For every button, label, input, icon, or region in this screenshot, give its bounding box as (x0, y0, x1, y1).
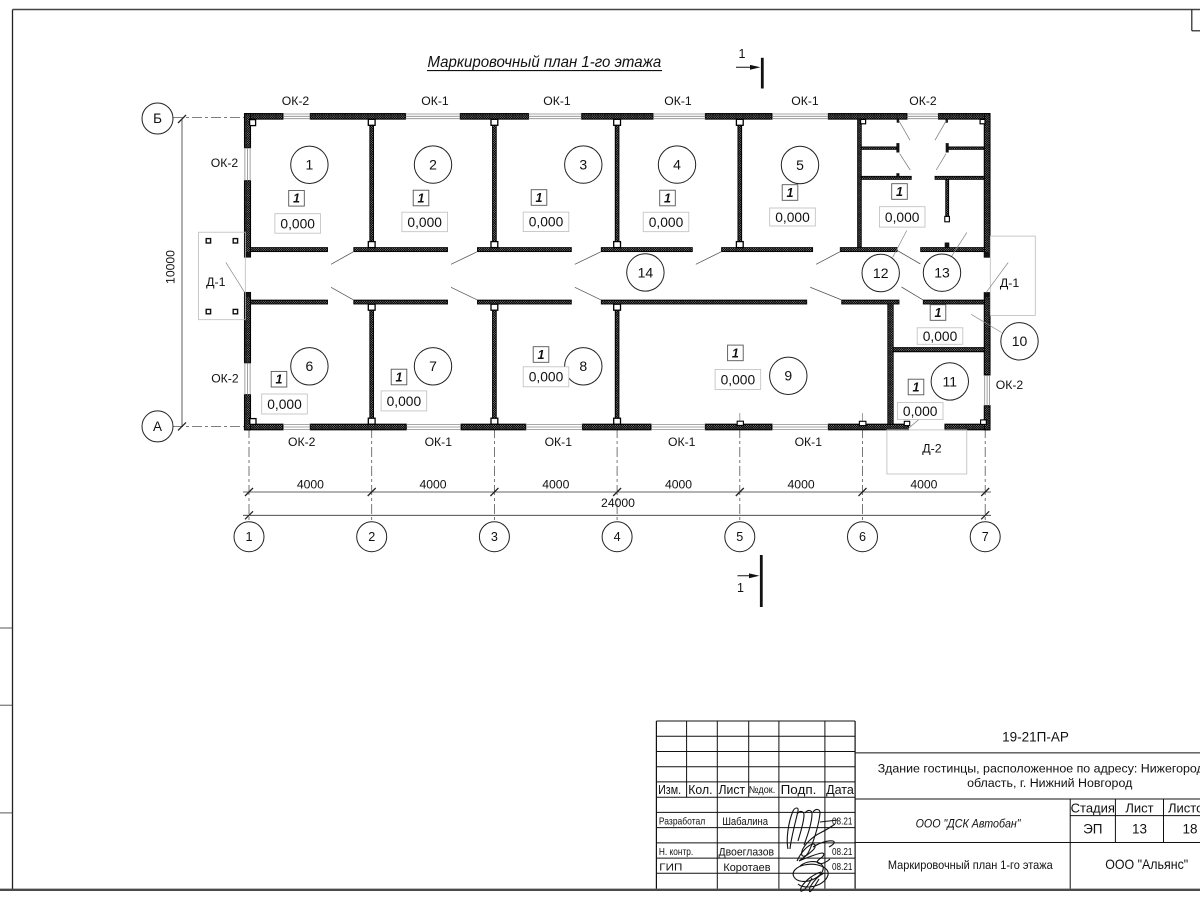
svg-text:1: 1 (664, 191, 671, 205)
svg-text:А: А (153, 419, 162, 434)
svg-text:4: 4 (673, 157, 681, 173)
svg-text:4000: 4000 (665, 478, 692, 492)
svg-text:0,000: 0,000 (885, 210, 920, 225)
svg-text:1: 1 (896, 185, 903, 199)
svg-text:08.21: 08.21 (832, 862, 853, 873)
svg-text:13: 13 (934, 265, 950, 281)
svg-text:№док.: №док. (749, 785, 776, 796)
svg-text:1: 1 (306, 157, 314, 173)
svg-text:ООО "Альянс": ООО "Альянс" (1105, 857, 1188, 872)
svg-text:4000: 4000 (297, 478, 324, 492)
svg-text:08.21: 08.21 (832, 816, 853, 827)
svg-text:0,000: 0,000 (775, 210, 810, 225)
svg-text:ОК-1: ОК-1 (664, 94, 692, 108)
svg-text:0,000: 0,000 (387, 394, 422, 409)
svg-text:10000: 10000 (164, 250, 178, 284)
svg-text:ОК-1: ОК-1 (545, 435, 573, 449)
svg-text:13: 13 (1132, 821, 1147, 836)
svg-text:Здание гостинцы, расположенное: Здание гостинцы, расположенное по адресу… (878, 762, 1200, 776)
svg-text:8: 8 (579, 358, 587, 374)
svg-text:4000: 4000 (788, 478, 815, 492)
svg-text:1: 1 (935, 306, 942, 320)
svg-text:5: 5 (796, 157, 804, 173)
svg-text:1: 1 (245, 530, 252, 544)
svg-text:Б: Б (153, 111, 162, 126)
svg-text:Подп.: Подп. (781, 783, 817, 797)
svg-text:0,000: 0,000 (529, 215, 564, 230)
svg-text:Д-2: Д-2 (922, 441, 942, 455)
svg-text:Дата: Дата (826, 783, 854, 797)
svg-text:1: 1 (538, 348, 545, 362)
svg-text:12: 12 (873, 265, 889, 281)
svg-text:3: 3 (579, 157, 587, 173)
svg-text:1: 1 (787, 186, 794, 200)
svg-text:ОК-1: ОК-1 (543, 94, 571, 108)
svg-text:24000: 24000 (601, 496, 635, 510)
svg-text:1: 1 (913, 380, 920, 394)
svg-text:1: 1 (739, 47, 746, 61)
svg-text:4000: 4000 (542, 478, 569, 492)
svg-text:ГИП: ГИП (659, 861, 682, 873)
svg-text:3: 3 (491, 530, 498, 544)
svg-text:ОК-1: ОК-1 (795, 435, 823, 449)
svg-text:1: 1 (396, 370, 403, 384)
svg-text:Стадия: Стадия (1071, 800, 1115, 815)
svg-text:10: 10 (1012, 333, 1028, 349)
svg-text:Коротаев: Коротаев (723, 862, 770, 874)
svg-text:Д-1: Д-1 (206, 275, 226, 289)
svg-text:ОК-1: ОК-1 (668, 435, 696, 449)
svg-text:1: 1 (737, 581, 744, 595)
svg-text:ЭП: ЭП (1083, 821, 1102, 836)
svg-text:Лист: Лист (719, 783, 746, 797)
svg-text:ОК-1: ОК-1 (421, 94, 449, 108)
svg-text:Кол.: Кол. (688, 783, 712, 797)
svg-text:ОК-1: ОК-1 (791, 94, 819, 108)
svg-text:Шабалина: Шабалина (722, 816, 769, 828)
svg-text:Н. контр.: Н. контр. (659, 846, 693, 858)
svg-text:1: 1 (536, 191, 543, 205)
svg-text:ОК-2: ОК-2 (211, 371, 239, 385)
svg-text:14: 14 (638, 264, 654, 280)
svg-text:7: 7 (982, 530, 989, 544)
svg-text:1: 1 (732, 346, 739, 360)
svg-text:0,000: 0,000 (280, 216, 315, 231)
svg-text:Маркировочный план 1-го этажа: Маркировочный план 1-го этажа (888, 858, 1053, 872)
svg-text:ОК-2: ОК-2 (288, 435, 316, 449)
svg-text:0,000: 0,000 (923, 329, 958, 344)
svg-text:ООО "ДСК Автобан": ООО "ДСК Автобан" (916, 817, 1022, 831)
svg-text:Разработал: Разработал (659, 816, 705, 828)
svg-text:0,000: 0,000 (721, 372, 756, 387)
svg-text:11: 11 (943, 373, 958, 389)
svg-text:1: 1 (418, 191, 425, 205)
svg-text:18: 18 (1182, 821, 1197, 836)
svg-text:0,000: 0,000 (267, 397, 302, 412)
svg-text:7: 7 (429, 358, 437, 374)
svg-text:Маркировочный план 1-го этажа: Маркировочный план 1-го этажа (428, 54, 662, 71)
svg-text:5: 5 (736, 530, 743, 544)
svg-text:ОК-2: ОК-2 (211, 156, 239, 170)
svg-text:область, г. Нижний Новгород: область, г. Нижний Новгород (967, 776, 1133, 790)
svg-text:ОК-1: ОК-1 (425, 435, 453, 449)
svg-text:ОК-2: ОК-2 (909, 94, 937, 108)
svg-text:Листов: Листов (1168, 800, 1200, 815)
svg-text:6: 6 (306, 358, 314, 374)
svg-text:2: 2 (429, 157, 437, 173)
svg-text:Изм.: Изм. (658, 783, 681, 797)
svg-text:19-21П-АР: 19-21П-АР (1002, 730, 1069, 745)
svg-text:1: 1 (276, 373, 283, 387)
svg-text:6: 6 (859, 530, 866, 544)
svg-text:0,000: 0,000 (407, 215, 442, 230)
svg-text:4: 4 (614, 530, 621, 544)
svg-text:1: 1 (293, 192, 300, 206)
svg-text:0,000: 0,000 (529, 370, 564, 385)
svg-text:Д-1: Д-1 (1000, 276, 1020, 290)
svg-text:0,000: 0,000 (649, 215, 684, 230)
svg-text:Двоеглазов: Двоеглазов (719, 847, 775, 859)
svg-text:4000: 4000 (910, 478, 937, 492)
svg-text:2: 2 (368, 530, 375, 544)
svg-text:ОК-2: ОК-2 (996, 378, 1024, 392)
svg-text:Лист: Лист (1125, 800, 1153, 815)
svg-text:0,000: 0,000 (903, 404, 938, 419)
svg-text:9: 9 (784, 368, 792, 384)
svg-text:4000: 4000 (419, 478, 446, 492)
svg-text:ОК-2: ОК-2 (282, 94, 310, 108)
svg-text:08.21: 08.21 (832, 847, 853, 858)
